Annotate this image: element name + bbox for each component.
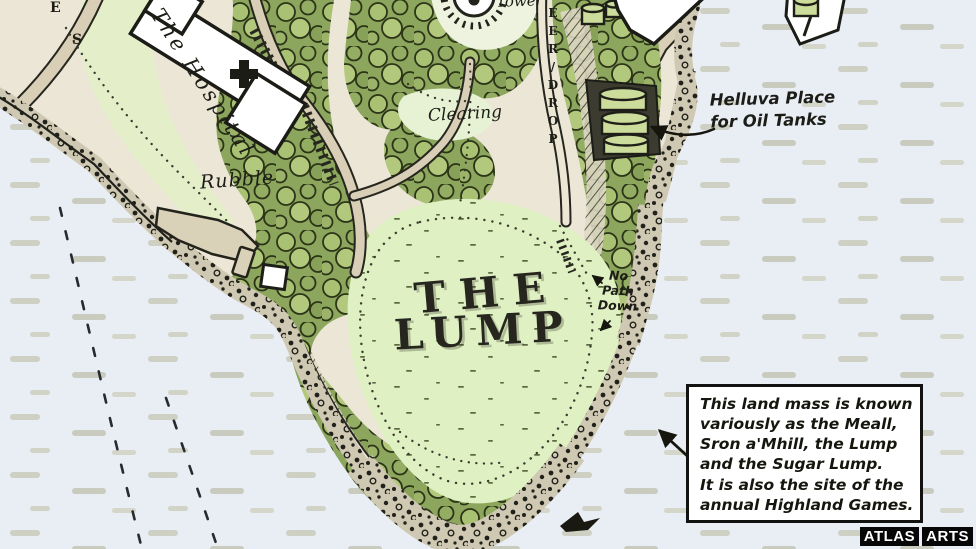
small-hut — [261, 264, 288, 289]
annotation-line-1: This land mass is known — [700, 394, 912, 414]
clearing-label: Clearing — [428, 102, 503, 126]
annotation-line-2: variously as the Meall, — [700, 414, 912, 434]
street-name-letter-2: S — [72, 32, 82, 48]
watermark: ATLAS ARTS — [860, 527, 973, 546]
street-name-letter-1: E — [50, 0, 61, 16]
watermark-part-2: ARTS — [922, 527, 973, 546]
annotation-line-5: It is also the site of the — [700, 475, 912, 495]
no-path-line-3: Down — [589, 298, 645, 315]
annotation-line-3: Sron a'Mhill, the Lump — [700, 434, 912, 454]
annotation-line-6: annual Highland Games. — [700, 495, 912, 515]
title-lump: LUMP — [393, 301, 573, 359]
tower-label: Tower — [496, 0, 543, 11]
oil-tanks-label: Helluva Place for Oil Tanks — [709, 86, 836, 133]
watermark-part-1: ATLAS — [860, 527, 919, 546]
oil-tanks-label-line-2: for Oil Tanks — [710, 108, 836, 133]
oil-tanks-label-line-1: Helluva Place — [709, 86, 835, 111]
sheer-drop-label: SHEER/DROP — [546, 0, 560, 150]
map-canvas: E S The Hospital Rubble Clearing Tower S… — [0, 0, 976, 549]
no-path-down-label: No Path Down — [589, 268, 647, 314]
annotation-box: This land mass is known variously as the… — [686, 384, 923, 523]
annotation-line-4: and the Sugar Lump. — [700, 454, 912, 474]
